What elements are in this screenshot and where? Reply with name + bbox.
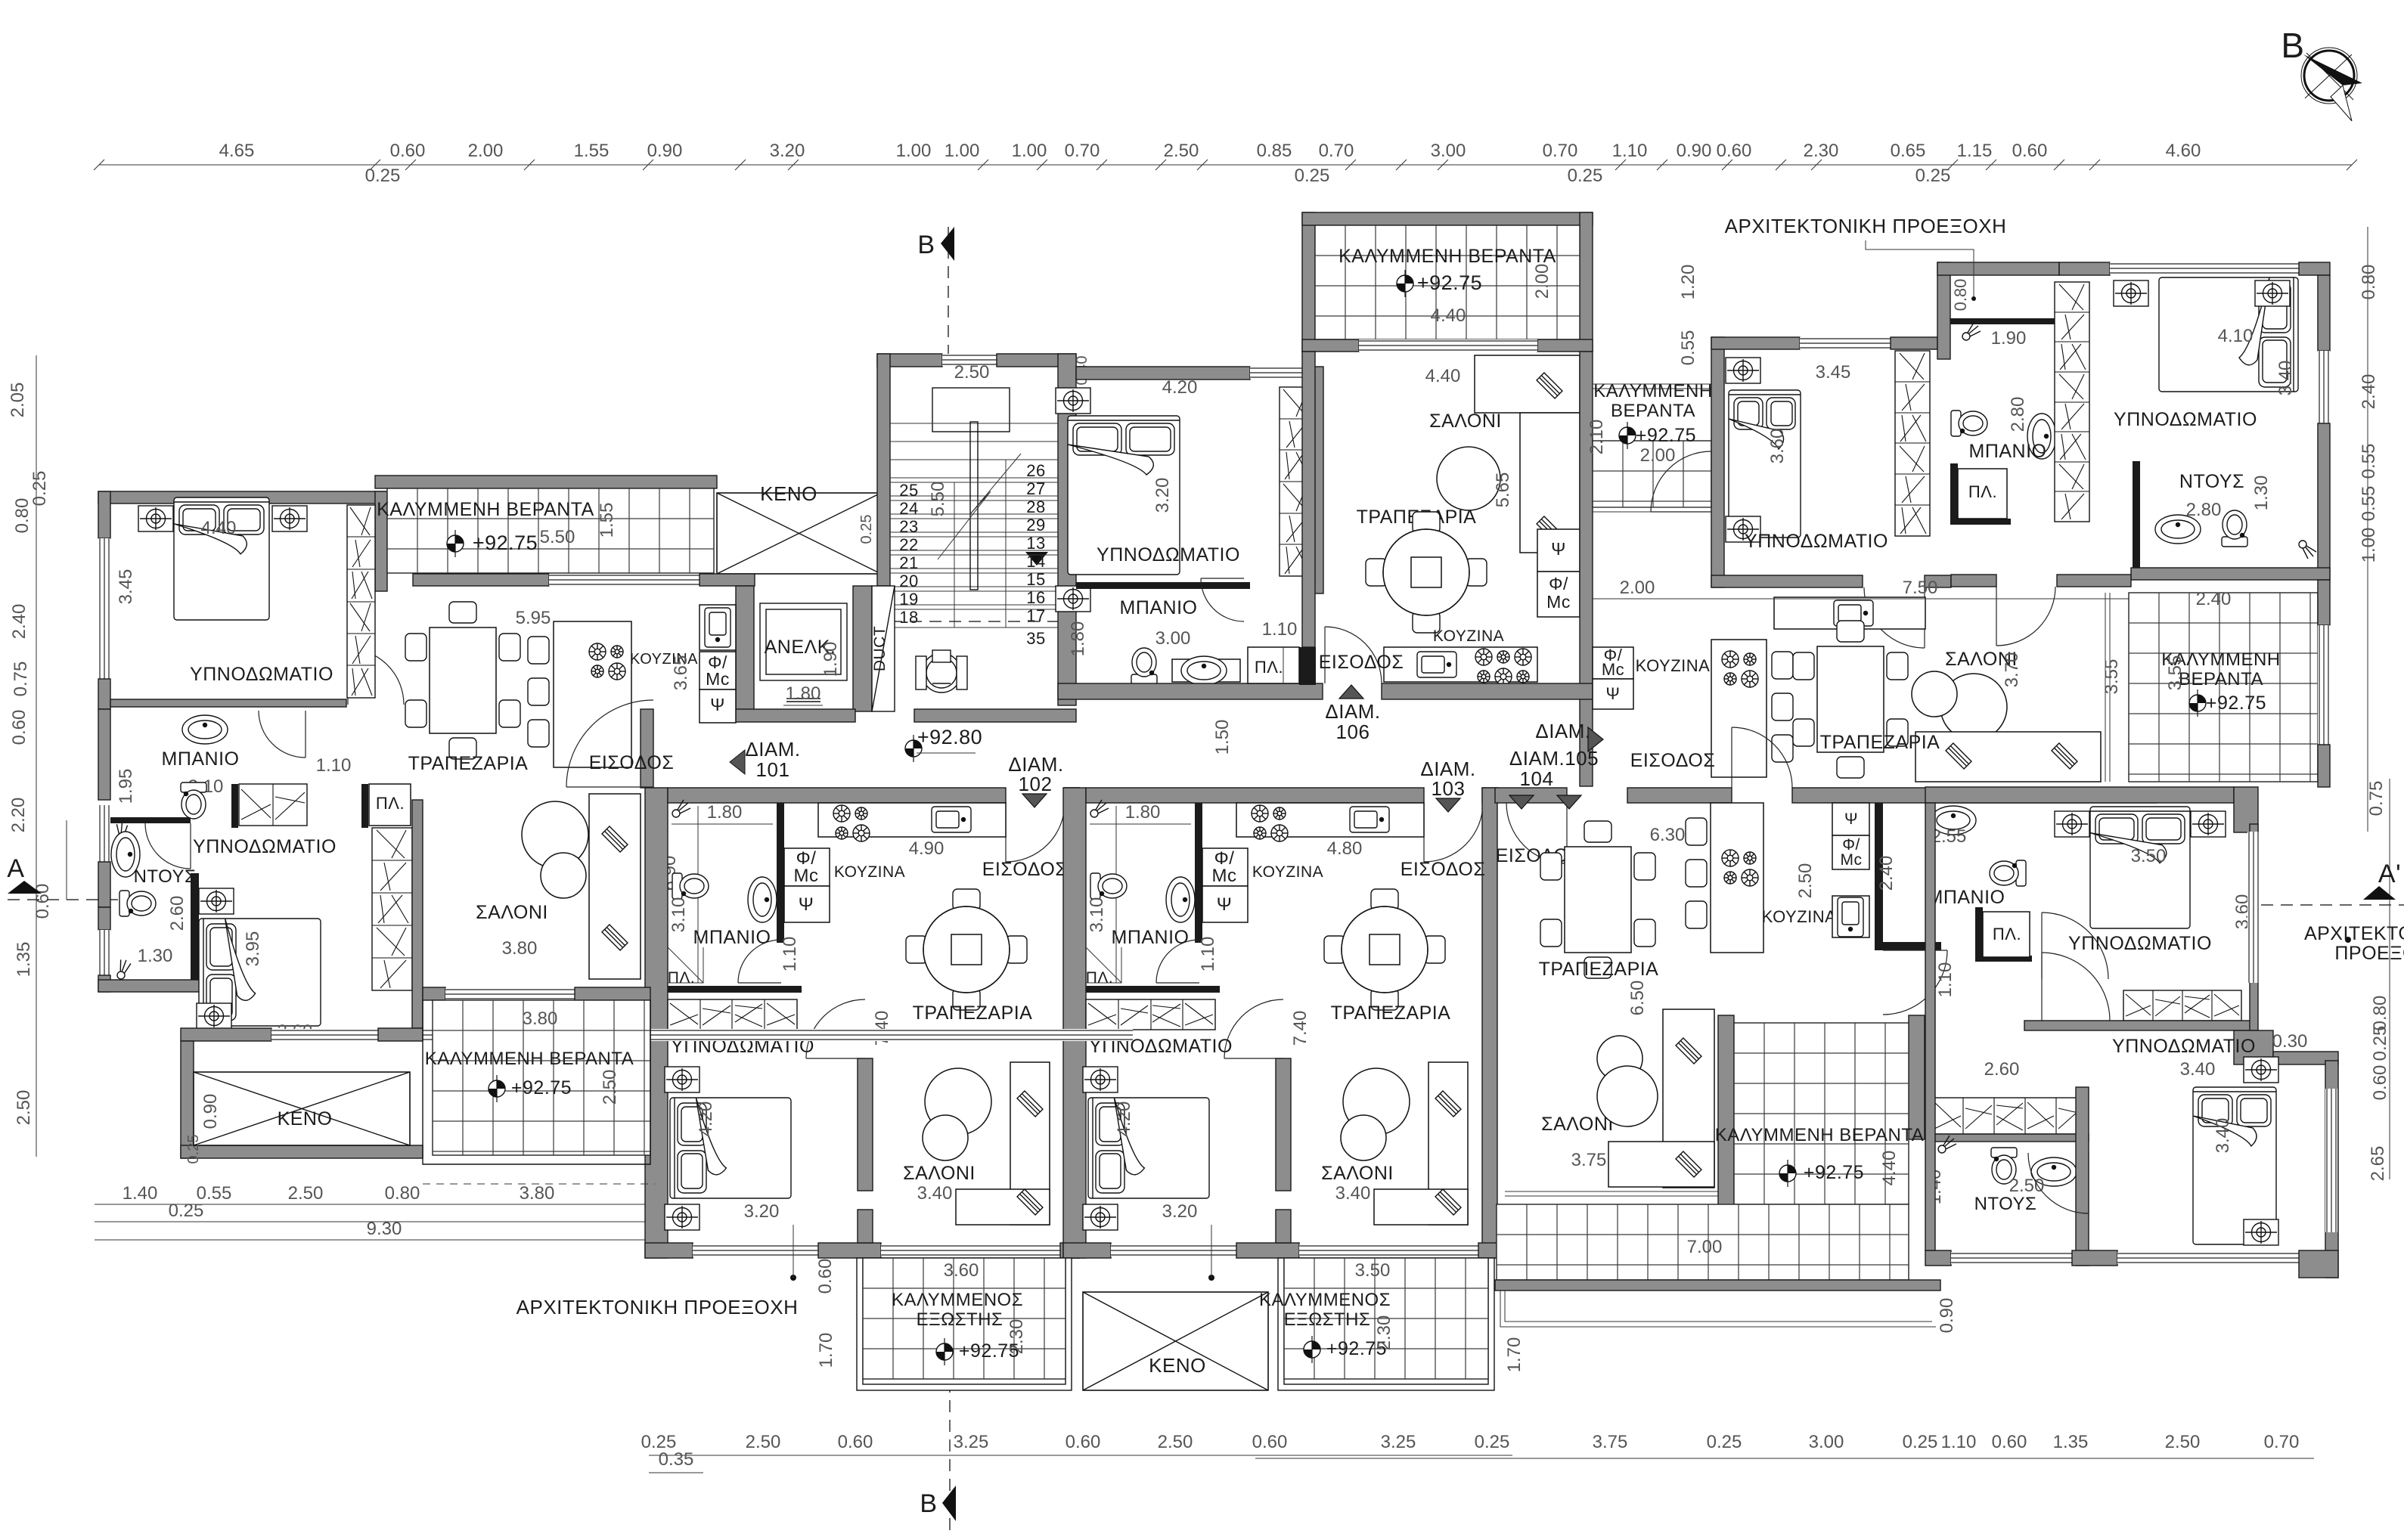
- svg-text:ΥΠΝΟΔΩΜΑΤΙΟ: ΥΠΝΟΔΩΜΑΤΙΟ: [1745, 531, 1888, 552]
- svg-text:ΥΠΝΟΔΩΜΑΤΙΟ: ΥΠΝΟΔΩΜΑΤΙΟ: [2112, 1036, 2256, 1057]
- svg-text:25: 25: [899, 481, 918, 500]
- svg-text:Mc: Mc: [706, 669, 730, 689]
- svg-text:0.90: 0.90: [1937, 1298, 1957, 1334]
- svg-text:ΔΙΑΜ.: ΔΙΑΜ.: [1535, 720, 1590, 742]
- svg-text:103: 103: [1432, 777, 1466, 800]
- svg-text:3.40: 3.40: [2213, 1118, 2233, 1154]
- svg-text:+92.75: +92.75: [473, 531, 538, 554]
- svg-text:3.00: 3.00: [1155, 628, 1191, 649]
- svg-text:3.50: 3.50: [2131, 846, 2167, 866]
- svg-text:2.40: 2.40: [9, 604, 29, 640]
- svg-text:4.20: 4.20: [1162, 377, 1198, 398]
- svg-text:0.70: 0.70: [1319, 141, 1354, 161]
- svg-text:2.30: 2.30: [1804, 141, 1839, 161]
- svg-text:2.20: 2.20: [8, 798, 29, 833]
- svg-text:0.55: 0.55: [2359, 486, 2379, 522]
- svg-text:ΑΡΧΙΤΕΚΤΟΝΙΚΗ ΠΡΟΕΞΟΧΗ: ΑΡΧΙΤΕΚΤΟΝΙΚΗ ΠΡΟΕΞΟΧΗ: [516, 1296, 799, 1318]
- svg-text:0.60: 0.60: [2370, 1065, 2390, 1101]
- svg-text:ΕΞΩΣΤΗΣ: ΕΞΩΣΤΗΣ: [1284, 1309, 1371, 1330]
- svg-text:ΠΛ.: ΠΛ.: [376, 794, 405, 813]
- svg-text:2.50: 2.50: [746, 1432, 781, 1452]
- svg-text:22: 22: [899, 535, 918, 554]
- svg-text:5.50: 5.50: [540, 527, 575, 547]
- svg-text:7.40: 7.40: [1290, 1011, 1311, 1046]
- svg-text:ΕΙΣΟΔΟΣ: ΕΙΣΟΔΟΣ: [1401, 859, 1486, 880]
- svg-text:16: 16: [1026, 588, 1045, 607]
- svg-text:+92.75: +92.75: [2206, 693, 2266, 714]
- svg-text:1.30: 1.30: [2251, 476, 2272, 511]
- svg-text:KENO: KENO: [760, 482, 817, 505]
- svg-text:3.55: 3.55: [2165, 655, 2185, 691]
- svg-text:ΣΑΛΟΝΙ: ΣΑΛΟΝΙ: [1541, 1114, 1614, 1135]
- svg-text:2.00: 2.00: [1620, 578, 1655, 598]
- svg-text:+92.75: +92.75: [1417, 271, 1482, 294]
- svg-text:Ψ: Ψ: [1217, 894, 1233, 915]
- svg-text:2.50: 2.50: [600, 1070, 620, 1105]
- svg-text:1.50: 1.50: [1212, 720, 1233, 755]
- svg-text:ΥΠΝΟΔΩΜΑΤΙΟ: ΥΠΝΟΔΩΜΑΤΙΟ: [190, 664, 333, 685]
- svg-text:1.10: 1.10: [1262, 619, 1298, 640]
- svg-text:2.55: 2.55: [1931, 826, 1967, 847]
- svg-text:ΕΙΣΟΔΟΣ: ΕΙΣΟΔΟΣ: [1630, 750, 1716, 771]
- svg-text:1.80: 1.80: [1068, 621, 1088, 657]
- svg-text:ΣΑΛΟΝΙ: ΣΑΛΟΝΙ: [903, 1163, 976, 1184]
- svg-text:3.45: 3.45: [116, 569, 136, 605]
- svg-text:1.40: 1.40: [123, 1183, 158, 1204]
- svg-text:1.30: 1.30: [138, 946, 173, 966]
- svg-text:3.40: 3.40: [2275, 361, 2296, 396]
- svg-text:0.25: 0.25: [365, 166, 401, 186]
- svg-text:ΔΙΑΜ.105: ΔΙΑΜ.105: [1509, 747, 1599, 770]
- svg-text:B: B: [920, 1489, 937, 1518]
- svg-text:3.00: 3.00: [1809, 1432, 1844, 1452]
- svg-text:Ψ: Ψ: [1844, 810, 1858, 828]
- svg-text:1.90: 1.90: [1991, 328, 2027, 349]
- svg-text:0.90: 0.90: [1677, 141, 1712, 161]
- svg-text:1.10: 1.10: [1935, 962, 1956, 998]
- svg-text:0.60: 0.60: [2012, 141, 2048, 161]
- svg-text:26: 26: [1026, 461, 1045, 480]
- svg-text:0.25: 0.25: [1295, 166, 1330, 186]
- svg-text:ΠΡΟΕΞΟΧΗ: ΠΡΟΕΞΟΧΗ: [2334, 943, 2404, 964]
- svg-text:1.10: 1.10: [780, 937, 800, 972]
- svg-text:5.65: 5.65: [1493, 473, 1513, 508]
- svg-text:1.35: 1.35: [2053, 1432, 2089, 1452]
- svg-text:21: 21: [899, 553, 918, 572]
- svg-text:B: B: [2281, 26, 2304, 65]
- svg-text:ΤΡΑΠΕΖΑΡΙΑ: ΤΡΑΠΕΖΑΡΙΑ: [1539, 959, 1659, 980]
- svg-text:0.25: 0.25: [29, 471, 50, 507]
- svg-text:3.10: 3.10: [1087, 897, 1107, 933]
- svg-text:35: 35: [1026, 629, 1045, 648]
- svg-text:0.55: 0.55: [2359, 444, 2379, 479]
- svg-text:2.65: 2.65: [2368, 1146, 2388, 1182]
- svg-text:0.60: 0.60: [815, 1259, 836, 1294]
- svg-text:Mc: Mc: [794, 866, 819, 886]
- svg-text:1.00: 1.00: [2359, 528, 2379, 563]
- svg-text:0.90: 0.90: [647, 141, 683, 161]
- svg-text:1.00: 1.00: [1012, 141, 1047, 161]
- svg-text:3.00: 3.00: [1431, 141, 1466, 161]
- svg-text:ΠΛ.: ΠΛ.: [1968, 482, 1997, 501]
- svg-text:3.60: 3.60: [944, 1260, 979, 1281]
- svg-text:1.10: 1.10: [1941, 1432, 1977, 1452]
- svg-text:2.00: 2.00: [1532, 264, 1553, 299]
- svg-text:2.30: 2.30: [1374, 1315, 1394, 1351]
- svg-text:ΒΕΡΑΝΤΑ: ΒΕΡΑΝΤΑ: [1611, 401, 1695, 421]
- svg-text:0.60: 0.60: [1992, 1432, 2027, 1452]
- svg-text:4.40: 4.40: [1431, 305, 1466, 326]
- svg-text:3.75: 3.75: [1571, 1150, 1607, 1170]
- svg-text:ΔΙΑΜ.: ΔΙΑΜ.: [745, 738, 800, 761]
- svg-text:0.25: 0.25: [1915, 166, 1951, 186]
- svg-text:0.25: 0.25: [858, 515, 875, 544]
- svg-text:3.20: 3.20: [1162, 1201, 1198, 1222]
- svg-text:Mc: Mc: [1212, 866, 1237, 886]
- svg-text:3.75: 3.75: [1593, 1432, 1628, 1452]
- svg-text:1.35: 1.35: [14, 942, 34, 978]
- svg-text:0.75: 0.75: [2366, 781, 2387, 816]
- svg-text:3.25: 3.25: [954, 1432, 989, 1452]
- svg-text:0.80: 0.80: [2359, 265, 2379, 300]
- svg-text:3.55: 3.55: [2102, 659, 2122, 695]
- svg-text:7.50: 7.50: [1903, 578, 1938, 598]
- svg-text:ΣΑΛΟΝΙ: ΣΑΛΟΝΙ: [1429, 411, 1502, 432]
- svg-text:1.90: 1.90: [820, 642, 841, 677]
- svg-text:9.30: 9.30: [367, 1219, 402, 1239]
- svg-text:ΜΠΑΝΙΟ: ΜΠΑΝΙΟ: [1112, 927, 1190, 948]
- svg-text:Ψ: Ψ: [1606, 684, 1621, 703]
- svg-text:2.50: 2.50: [2009, 1176, 2045, 1196]
- svg-text:ΥΠΝΟΔΩΜΑΤΙΟ: ΥΠΝΟΔΩΜΑΤΙΟ: [2114, 409, 2257, 430]
- svg-text:2.50: 2.50: [1164, 141, 1199, 161]
- svg-text:2.05: 2.05: [8, 383, 28, 418]
- svg-text:2.50: 2.50: [288, 1183, 324, 1204]
- svg-text:+92.75: +92.75: [1636, 425, 1696, 446]
- svg-text:13: 13: [1026, 534, 1045, 553]
- svg-text:19: 19: [899, 590, 918, 609]
- svg-text:ΤΡΑΠΕΖΑΡΙΑ: ΤΡΑΠΕΖΑΡΙΑ: [1820, 732, 1940, 753]
- svg-text:7.00: 7.00: [1687, 1237, 1723, 1257]
- svg-text:ΜΠΑΝΙΟ: ΜΠΑΝΙΟ: [1120, 597, 1198, 618]
- svg-text:3.65: 3.65: [671, 655, 691, 691]
- svg-text:0.80: 0.80: [12, 498, 33, 534]
- svg-text:2.60: 2.60: [167, 896, 188, 931]
- svg-text:3.40: 3.40: [1335, 1183, 1371, 1204]
- svg-text:3.60: 3.60: [1767, 429, 1788, 464]
- svg-text:3.40: 3.40: [2180, 1059, 2216, 1080]
- svg-text:ΜΠΑΝΙΟ: ΜΠΑΝΙΟ: [693, 927, 771, 948]
- svg-text:4.40: 4.40: [1425, 366, 1461, 386]
- svg-text:1.15: 1.15: [1957, 141, 1993, 161]
- svg-text:ΑΡΧΙΤΕΚΤΟΝΙΚΗ ΠΡΟΕΞΟΧΗ: ΑΡΧΙΤΕΚΤΟΝΙΚΗ ΠΡΟΕΞΟΧΗ: [1725, 215, 2007, 237]
- svg-text:3.50: 3.50: [1355, 1260, 1391, 1281]
- svg-text:ΜΠΑΝΙΟ: ΜΠΑΝΙΟ: [162, 748, 240, 770]
- svg-text:4.20: 4.20: [696, 1102, 716, 1137]
- svg-text:29: 29: [1026, 516, 1045, 535]
- svg-text:ΚΑΛΥΜΜΕΝΗ ΒΕΡΑΝΤΑ: ΚΑΛΥΜΜΕΝΗ ΒΕΡΑΝΤΑ: [377, 499, 594, 520]
- svg-text:3.25: 3.25: [1381, 1432, 1416, 1452]
- svg-text:3.40: 3.40: [917, 1183, 953, 1204]
- svg-text:Mc: Mc: [1602, 660, 1624, 679]
- svg-text:ΥΠΝΟΔΩΜΑΤΙΟ: ΥΠΝΟΔΩΜΑΤΙΟ: [2068, 933, 2212, 954]
- svg-text:ΔΙΑΜ.: ΔΙΑΜ.: [1325, 700, 1380, 723]
- svg-text:1.80: 1.80: [1125, 802, 1161, 823]
- svg-text:ΝΤΟΥΣ: ΝΤΟΥΣ: [1974, 1194, 2037, 1214]
- svg-text:1.55: 1.55: [574, 141, 610, 161]
- svg-text:ΠΛ.: ΠΛ.: [668, 969, 696, 987]
- svg-text:ΝΤΟΥΣ: ΝΤΟΥΣ: [2179, 471, 2244, 492]
- svg-text:DUCT: DUCT: [871, 626, 889, 671]
- svg-text:4.80: 4.80: [1327, 838, 1363, 859]
- svg-text:0.70: 0.70: [2264, 1432, 2300, 1452]
- svg-text:ΚΟΥΖΙΝΑ: ΚΟΥΖΙΝΑ: [1636, 656, 1711, 675]
- svg-text:3.20: 3.20: [1152, 478, 1173, 513]
- svg-text:1.95: 1.95: [116, 769, 136, 804]
- svg-text:1.80: 1.80: [707, 802, 743, 823]
- svg-text:0.60: 0.60: [1066, 1432, 1101, 1452]
- svg-text:0.25: 0.25: [1568, 166, 1603, 186]
- svg-text:0.60: 0.60: [1252, 1432, 1288, 1452]
- svg-text:0.60: 0.60: [33, 884, 53, 919]
- svg-text:2.40: 2.40: [2196, 589, 2232, 609]
- svg-text:23: 23: [899, 517, 918, 536]
- svg-text:KENO: KENO: [1149, 1354, 1206, 1377]
- svg-text:24: 24: [899, 499, 918, 518]
- svg-text:6.30: 6.30: [1650, 825, 1686, 845]
- svg-text:Φ/: Φ/: [1549, 574, 1568, 593]
- svg-text:3.70: 3.70: [2002, 652, 2022, 688]
- svg-text:Ψ: Ψ: [710, 695, 725, 714]
- svg-text:Ψ: Ψ: [799, 894, 814, 915]
- svg-text:0.25: 0.25: [1903, 1432, 1938, 1452]
- svg-text:2.00: 2.00: [1640, 445, 1676, 466]
- svg-text:ΠΛ.: ΠΛ.: [1255, 658, 1283, 677]
- svg-text:2.10: 2.10: [1587, 420, 1607, 455]
- svg-text:ΤΡΑΠΕΖΑΡΙΑ: ΤΡΑΠΕΖΑΡΙΑ: [913, 1002, 1033, 1024]
- svg-text:Mc: Mc: [1841, 851, 1863, 869]
- svg-text:ΚΟΥΖΙΝΑ: ΚΟΥΖΙΝΑ: [1433, 627, 1504, 645]
- svg-text:4.65: 4.65: [219, 141, 255, 161]
- svg-text:ΜΠΑΝΙΟ: ΜΠΑΝΙΟ: [1928, 887, 2005, 908]
- svg-text:ΣΑΛΟΝΙ: ΣΑΛΟΝΙ: [1321, 1163, 1394, 1184]
- svg-text:3.95: 3.95: [243, 931, 263, 967]
- svg-text:ΕΙΣΟΔΟΣ: ΕΙΣΟΔΟΣ: [589, 752, 675, 773]
- svg-text:101: 101: [756, 758, 790, 781]
- svg-text:ΚΑΛΥΜΜΕΝΗ ΒΕΡΑΝΤΑ: ΚΑΛΥΜΜΕΝΗ ΒΕΡΑΝΤΑ: [1715, 1125, 1925, 1145]
- svg-text:2.50: 2.50: [2165, 1432, 2201, 1452]
- svg-text:ΣΑΛΟΝΙ: ΣΑΛΟΝΙ: [476, 902, 548, 923]
- svg-text:0.70: 0.70: [1065, 141, 1100, 161]
- svg-text:1.70: 1.70: [816, 1333, 836, 1368]
- svg-text:1.10: 1.10: [1612, 141, 1648, 161]
- svg-text:4.10: 4.10: [2218, 326, 2254, 346]
- svg-text:ΥΠΝΟΔΩΜΑΤΙΟ: ΥΠΝΟΔΩΜΑΤΙΟ: [1097, 544, 1240, 565]
- svg-text:ΑΡΧΙΤΕΚΤΟΝΙΚΗ: ΑΡΧΙΤΕΚΤΟΝΙΚΗ: [2304, 923, 2404, 944]
- svg-text:+92.80: +92.80: [917, 726, 982, 748]
- svg-text:0.25: 0.25: [1475, 1432, 1510, 1452]
- svg-text:ΕΞΩΣΤΗΣ: ΕΞΩΣΤΗΣ: [917, 1309, 1003, 1330]
- svg-text:4.40: 4.40: [1879, 1151, 1900, 1186]
- svg-text:B: B: [917, 231, 935, 259]
- svg-text:0.85: 0.85: [1257, 141, 1292, 161]
- svg-text:5.50: 5.50: [928, 482, 948, 517]
- svg-text:ΒΕΡΑΝΤΑ: ΒΕΡΑΝΤΑ: [2179, 669, 2263, 689]
- svg-text:KENO: KENO: [278, 1108, 333, 1129]
- svg-text:ΜΠΑΝΙΟ: ΜΠΑΝΙΟ: [1969, 441, 2047, 462]
- svg-text:ΚΑΛΥΜΜΕΝΟΣ: ΚΑΛΥΜΜΕΝΟΣ: [1259, 1290, 1391, 1310]
- svg-text:0.80: 0.80: [1951, 279, 1970, 311]
- svg-text:4.90: 4.90: [909, 838, 945, 859]
- svg-text:ΕΙΣΟΔΟΣ: ΕΙΣΟΔΟΣ: [982, 859, 1068, 880]
- svg-text:4.60: 4.60: [2166, 141, 2201, 161]
- svg-text:2.40: 2.40: [2359, 374, 2379, 410]
- svg-text:4.40: 4.40: [201, 518, 237, 538]
- svg-text:+92.75: +92.75: [1804, 1162, 1864, 1183]
- svg-text:ΚΟΥΖΙΝΑ: ΚΟΥΖΙΝΑ: [1762, 907, 1837, 926]
- svg-text:0.60: 0.60: [1717, 141, 1752, 161]
- svg-text:3.10: 3.10: [668, 897, 689, 933]
- svg-text:1.20: 1.20: [1678, 265, 1698, 300]
- svg-text:1.00: 1.00: [896, 141, 932, 161]
- svg-text:3.20: 3.20: [770, 141, 805, 161]
- svg-text:0.60: 0.60: [838, 1432, 873, 1452]
- svg-text:2.50: 2.50: [954, 362, 990, 383]
- svg-text:3.80: 3.80: [502, 938, 538, 959]
- svg-text:104: 104: [1520, 767, 1554, 790]
- svg-text:4.20: 4.20: [1114, 1102, 1134, 1137]
- svg-text:2.30: 2.30: [1007, 1319, 1027, 1355]
- svg-text:0.55: 0.55: [1678, 330, 1698, 366]
- svg-text:5.95: 5.95: [516, 608, 551, 628]
- svg-text:0.90: 0.90: [200, 1094, 221, 1129]
- svg-text:0.25: 0.25: [2370, 1026, 2390, 1061]
- svg-text:ΠΛ.: ΠΛ.: [1993, 925, 2021, 944]
- svg-text:1.10: 1.10: [316, 755, 352, 776]
- svg-text:0.25: 0.25: [169, 1201, 204, 1221]
- svg-text:106: 106: [1336, 720, 1370, 743]
- svg-text:1.70: 1.70: [1504, 1337, 1525, 1373]
- svg-text:3.80: 3.80: [523, 1009, 558, 1029]
- svg-text:ΚΑΛΥΜΜΕΝΗ: ΚΑΛΥΜΜΕΝΗ: [1593, 381, 1712, 401]
- svg-text:0.30: 0.30: [2272, 1031, 2308, 1052]
- svg-text:ΚΑΛΥΜΜΕΝΗ ΒΕΡΑΝΤΑ: ΚΑΛΥΜΜΕΝΗ ΒΕΡΑΝΤΑ: [1338, 246, 1556, 267]
- svg-text:3.80: 3.80: [520, 1183, 555, 1204]
- svg-text:2.00: 2.00: [468, 141, 504, 161]
- svg-text:0.25: 0.25: [1707, 1432, 1742, 1452]
- svg-text:ΚΑΛΥΜΜΕΝΗ ΒΕΡΑΝΤΑ: ΚΑΛΥΜΜΕΝΗ ΒΕΡΑΝΤΑ: [425, 1049, 634, 1069]
- svg-text:0.80: 0.80: [2370, 996, 2390, 1031]
- svg-text:A: A: [7, 854, 24, 883]
- svg-text:6.50: 6.50: [1627, 981, 1648, 1016]
- svg-text:1.80: 1.80: [786, 683, 821, 704]
- svg-text:Ψ: Ψ: [1551, 539, 1566, 559]
- svg-text:ΚΑΛΥΜΜΕΝΟΣ: ΚΑΛΥΜΜΕΝΟΣ: [892, 1290, 1023, 1310]
- svg-text:28: 28: [1026, 497, 1045, 516]
- svg-text:Α': Α': [2378, 860, 2401, 888]
- svg-text:2.80: 2.80: [2008, 397, 2028, 432]
- svg-text:15: 15: [1026, 570, 1045, 589]
- svg-text:+92.75: +92.75: [511, 1077, 572, 1098]
- svg-text:17: 17: [1026, 606, 1045, 625]
- svg-text:3.45: 3.45: [1816, 362, 1851, 383]
- svg-text:2.50: 2.50: [1795, 863, 1816, 899]
- svg-text:ΤΡΑΠΕΖΑΡΙΑ: ΤΡΑΠΕΖΑΡΙΑ: [408, 753, 529, 774]
- svg-text:0.70: 0.70: [1543, 141, 1578, 161]
- svg-text:2.50: 2.50: [1158, 1432, 1193, 1452]
- svg-text:0.35: 0.35: [659, 1449, 694, 1470]
- svg-text:0.75: 0.75: [11, 662, 31, 697]
- svg-text:ΚΟΥΖΙΝΑ: ΚΟΥΖΙΝΑ: [1252, 863, 1323, 881]
- svg-text:102: 102: [1019, 773, 1053, 795]
- svg-text:3.20: 3.20: [744, 1201, 780, 1222]
- svg-text:2.60: 2.60: [1984, 1059, 2020, 1080]
- svg-text:ΝΤΟΥΣ: ΝΤΟΥΣ: [134, 866, 197, 887]
- svg-text:1.55: 1.55: [597, 503, 617, 538]
- svg-text:0.25: 0.25: [185, 1135, 202, 1164]
- svg-text:14: 14: [1026, 552, 1045, 571]
- svg-text:0.60: 0.60: [9, 710, 29, 745]
- svg-text:20: 20: [899, 572, 918, 590]
- svg-text:ΠΛ.: ΠΛ.: [1086, 969, 1114, 987]
- svg-text:ΕΙΣΟΔΟΣ: ΕΙΣΟΔΟΣ: [1319, 652, 1404, 673]
- svg-text:0.60: 0.60: [390, 141, 426, 161]
- svg-text:ΚΟΥΖΙΝΑ: ΚΟΥΖΙΝΑ: [834, 863, 905, 881]
- svg-text:18: 18: [899, 608, 918, 627]
- svg-text:1.00: 1.00: [945, 141, 980, 161]
- svg-text:ΥΠΝΟΔΩΜΑΤΙΟ: ΥΠΝΟΔΩΜΑΤΙΟ: [193, 836, 337, 857]
- svg-text:ΤΡΑΠΕΖΑΡΙΑ: ΤΡΑΠΕΖΑΡΙΑ: [1331, 1002, 1451, 1024]
- svg-text:0.80: 0.80: [385, 1183, 420, 1204]
- svg-text:27: 27: [1026, 479, 1045, 498]
- svg-text:2.50: 2.50: [14, 1090, 34, 1126]
- svg-text:2.40: 2.40: [1876, 856, 1897, 891]
- svg-text:Mc: Mc: [1546, 592, 1571, 612]
- svg-text:1.10: 1.10: [1198, 937, 1218, 972]
- svg-text:0.65: 0.65: [1891, 141, 1926, 161]
